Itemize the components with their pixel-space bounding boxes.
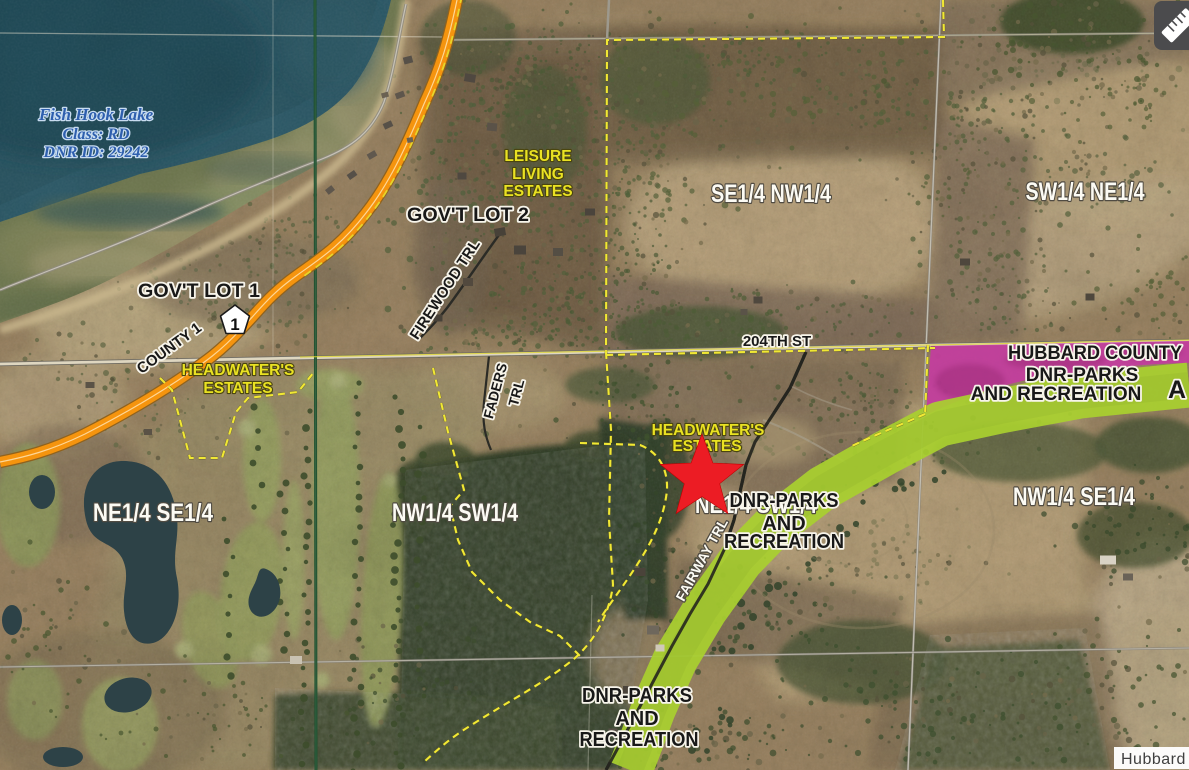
svg-text:NW1/4 SE1/4: NW1/4 SE1/4 bbox=[1013, 483, 1135, 511]
svg-text:NE1/4 SE1/4: NE1/4 SE1/4 bbox=[93, 499, 213, 527]
svg-text:ESTATES: ESTATES bbox=[203, 380, 272, 397]
svg-text:HEADWATER'S: HEADWATER'S bbox=[652, 422, 765, 439]
svg-text:NW1/4 SW1/4: NW1/4 SW1/4 bbox=[392, 499, 518, 527]
svg-text:SE1/4 NW1/4: SE1/4 NW1/4 bbox=[711, 180, 831, 208]
svg-text:SW1/4 NE1/4: SW1/4 NE1/4 bbox=[1026, 178, 1145, 206]
svg-text:Class: RD: Class: RD bbox=[62, 126, 130, 143]
svg-text:Fish Hook Lake: Fish Hook Lake bbox=[38, 105, 154, 124]
svg-text:DNR-PARKS: DNR-PARKS bbox=[1026, 365, 1139, 386]
svg-text:204TH ST: 204TH ST bbox=[743, 333, 811, 350]
svg-text:ESTATES: ESTATES bbox=[503, 183, 572, 200]
svg-text:GOV'T LOT 1: GOV'T LOT 1 bbox=[138, 280, 260, 302]
svg-text:AND RECREATION: AND RECREATION bbox=[971, 384, 1142, 405]
svg-text:Hubbard: Hubbard bbox=[1121, 751, 1186, 768]
svg-text:DNR-PARKS: DNR-PARKS bbox=[730, 490, 839, 512]
svg-text:RECREATION: RECREATION bbox=[580, 729, 699, 751]
svg-text:AND: AND bbox=[615, 708, 658, 730]
svg-text:1: 1 bbox=[230, 315, 239, 334]
svg-text:GOV'T LOT 2: GOV'T LOT 2 bbox=[407, 204, 529, 226]
svg-text:A: A bbox=[1168, 376, 1186, 404]
svg-text:LIVING: LIVING bbox=[512, 166, 564, 183]
svg-text:RECREATION: RECREATION bbox=[724, 531, 844, 553]
svg-text:HUBBARD COUNTY: HUBBARD COUNTY bbox=[1008, 343, 1182, 364]
svg-text:DNR ID: 29242: DNR ID: 29242 bbox=[43, 144, 149, 161]
svg-text:LEISURE: LEISURE bbox=[504, 148, 571, 165]
svg-text:DNR-PARKS: DNR-PARKS bbox=[582, 685, 692, 707]
svg-text:HEADWATER'S: HEADWATER'S bbox=[182, 362, 295, 379]
